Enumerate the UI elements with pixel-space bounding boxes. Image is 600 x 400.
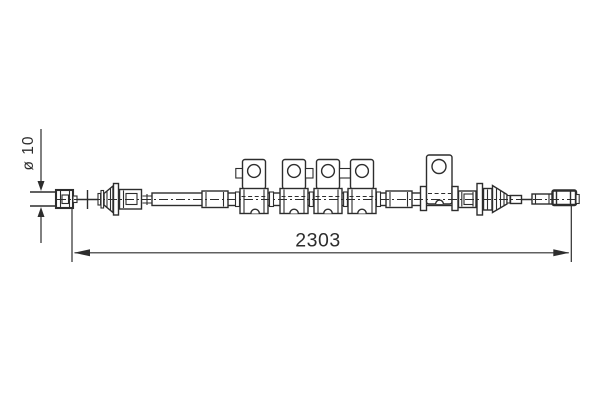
mounting-bracket-2 (280, 160, 313, 214)
diameter-arrow-bottom (38, 207, 45, 243)
mounting-bracket-tall (421, 155, 459, 211)
bracket-tab (340, 169, 351, 179)
technical-drawing-canvas: ø 10 (0, 0, 600, 400)
clamp-notch (324, 209, 333, 213)
clamp-notch (251, 209, 260, 213)
bracket-hole-icon (288, 165, 301, 178)
cable-end-right (510, 191, 579, 206)
mounting-bracket-1 (236, 160, 274, 214)
bracket-hole-icon (248, 165, 261, 178)
bracket-hole-icon (432, 160, 446, 174)
length-label: 2303 (295, 230, 340, 252)
clamp-notch (290, 209, 299, 213)
clamp-notch (358, 209, 367, 213)
bracket-hole-icon (322, 165, 335, 178)
brake-cable-drawing: ø 10 (0, 0, 600, 400)
bracket-tab (306, 169, 314, 179)
mounting-bracket-4 (348, 160, 381, 214)
diameter-dimension: ø 10 (20, 129, 45, 243)
mounting-bracket-3 (314, 160, 351, 214)
bracket-notch (436, 200, 444, 204)
diameter-label: ø 10 (20, 135, 37, 170)
bracket-hole-icon (356, 165, 369, 178)
diameter-arrow-top (38, 129, 45, 191)
